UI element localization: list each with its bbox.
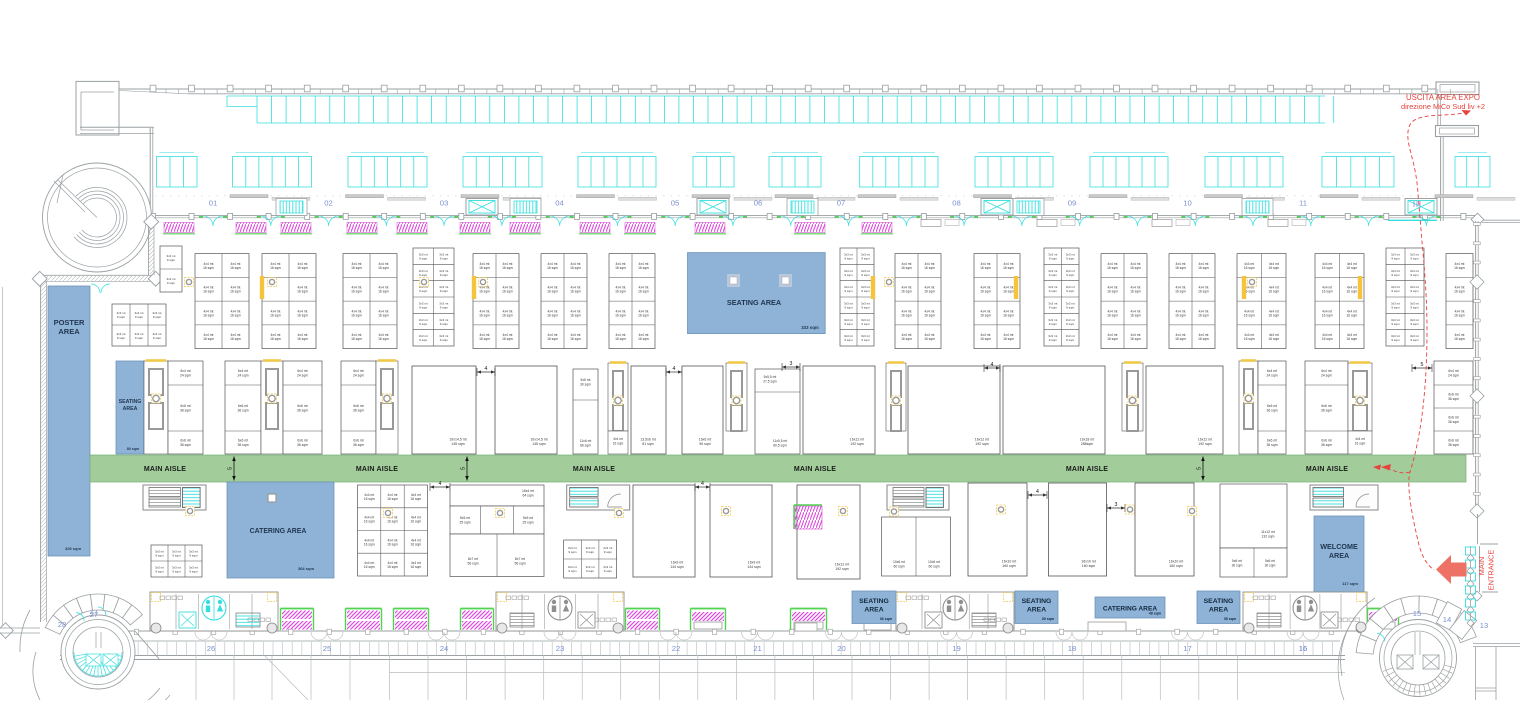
svg-text:25 sqm: 25 sqm — [459, 521, 470, 525]
svg-text:AREA: AREA — [123, 406, 138, 412]
svg-text:16 sqm: 16 sqm — [1268, 266, 1279, 270]
svg-text:9 sqm: 9 sqm — [153, 315, 162, 319]
svg-text:16 sqm: 16 sqm — [479, 313, 490, 317]
svg-text:AREA: AREA — [864, 607, 883, 614]
svg-text:24 sqm: 24 sqm — [1321, 373, 1332, 377]
svg-text:16 sqm: 16 sqm — [570, 337, 581, 341]
svg-text:9 sqm: 9 sqm — [153, 336, 162, 340]
svg-text:11: 11 — [1299, 199, 1307, 208]
svg-text:16 sqm: 16 sqm — [570, 313, 581, 317]
svg-text:192 sqm: 192 sqm — [835, 567, 849, 571]
svg-text:16 sqm: 16 sqm — [1130, 266, 1141, 270]
svg-text:16 sqm: 16 sqm — [901, 313, 912, 317]
svg-text:16x10 mt: 16x10 mt — [1081, 560, 1095, 564]
svg-text:13,5x6 mt: 13,5x6 mt — [640, 438, 655, 442]
svg-text:23: 23 — [556, 644, 565, 653]
svg-text:16 sqm: 16 sqm — [1130, 290, 1141, 294]
svg-text:3: 3 — [1115, 502, 1118, 508]
svg-text:16 sqm: 16 sqm — [364, 542, 375, 546]
svg-text:11x12 mt: 11x12 mt — [1261, 530, 1275, 534]
svg-text:22: 22 — [672, 644, 681, 653]
svg-text:5: 5 — [1421, 362, 1424, 368]
svg-text:9 sqm: 9 sqm — [1066, 273, 1075, 277]
svg-text:16 sqm: 16 sqm — [980, 266, 991, 270]
svg-text:16 sqm: 16 sqm — [270, 266, 281, 270]
svg-text:16 sqm: 16 sqm — [638, 337, 649, 341]
svg-text:16 sqm: 16 sqm — [1198, 313, 1209, 317]
svg-text:16 sqm: 16 sqm — [479, 266, 490, 270]
svg-text:9 sqm: 9 sqm — [1391, 338, 1400, 342]
svg-text:16 sqm: 16 sqm — [1130, 337, 1141, 341]
svg-text:9 sqm: 9 sqm — [861, 289, 870, 293]
svg-text:60,5 sqm: 60,5 sqm — [773, 444, 787, 448]
svg-text:16 sqm: 16 sqm — [297, 266, 308, 270]
svg-text:9 sqm: 9 sqm — [1066, 322, 1075, 326]
svg-text:16 sqm: 16 sqm — [1454, 266, 1465, 270]
svg-text:9 sqm: 9 sqm — [172, 553, 181, 557]
svg-text:16x9 mt: 16x9 mt — [671, 561, 683, 565]
svg-text:WELCOME: WELCOME — [1320, 542, 1358, 551]
svg-text:16x12 mt: 16x12 mt — [1198, 438, 1212, 442]
svg-text:21: 21 — [753, 644, 762, 653]
svg-text:16 sqm: 16 sqm — [1454, 290, 1465, 294]
svg-text:16 sqm: 16 sqm — [615, 266, 626, 270]
svg-text:16 sqm: 16 sqm — [1003, 313, 1014, 317]
svg-text:16 sqm: 16 sqm — [1268, 337, 1279, 341]
svg-text:36 sqm: 36 sqm — [1321, 408, 1332, 412]
svg-text:16 sqm: 16 sqm — [297, 313, 308, 317]
svg-text:16 sqm: 16 sqm — [547, 313, 558, 317]
svg-text:9 sqm: 9 sqm — [1391, 289, 1400, 293]
svg-text:16 sqm: 16 sqm — [203, 266, 214, 270]
svg-text:9 sqm: 9 sqm — [155, 569, 164, 573]
svg-text:16 sqm: 16 sqm — [901, 337, 912, 341]
svg-text:16 sqm: 16 sqm — [1107, 290, 1118, 294]
svg-text:9 sqm: 9 sqm — [1391, 257, 1400, 261]
svg-text:4x4 mt: 4x4 mt — [1355, 437, 1365, 441]
svg-text:16 sqm: 16 sqm — [638, 313, 649, 317]
svg-text:5x6 mt: 5x6 mt — [1265, 559, 1275, 563]
svg-text:16 sqm: 16 sqm — [1175, 290, 1186, 294]
svg-text:16 sqm: 16 sqm — [615, 290, 626, 294]
svg-text:192 sqm: 192 sqm — [975, 442, 989, 446]
svg-text:36 sqm: 36 sqm — [297, 443, 308, 447]
svg-text:16 sqm: 16 sqm — [1244, 266, 1255, 270]
svg-text:16 sqm: 16 sqm — [502, 290, 513, 294]
svg-text:16: 16 — [1299, 644, 1308, 653]
svg-text:16 sqm: 16 sqm — [1346, 266, 1357, 270]
svg-text:16 sqm: 16 sqm — [547, 337, 558, 341]
svg-text:9 sqm: 9 sqm — [1391, 273, 1400, 277]
svg-text:16x10 mt: 16x10 mt — [1169, 560, 1183, 564]
svg-text:9 sqm: 9 sqm — [861, 273, 870, 277]
svg-text:16 sqm: 16 sqm — [638, 266, 649, 270]
svg-text:MAIN AISLE: MAIN AISLE — [356, 466, 398, 473]
svg-text:9 sqm: 9 sqm — [844, 273, 853, 277]
svg-text:MAIN AISLE: MAIN AISLE — [1306, 466, 1348, 473]
svg-text:16 sqm: 16 sqm — [387, 520, 398, 524]
svg-text:24 sqm: 24 sqm — [180, 373, 191, 377]
svg-text:9 sqm: 9 sqm — [844, 306, 853, 310]
svg-text:4: 4 — [991, 362, 994, 368]
svg-text:03: 03 — [440, 199, 449, 208]
svg-text:SEATING AREA: SEATING AREA — [727, 298, 782, 307]
svg-text:9 sqm: 9 sqm — [419, 289, 428, 293]
svg-text:MAIN AISLE: MAIN AISLE — [573, 466, 615, 473]
svg-text:16 sqm: 16 sqm — [351, 313, 362, 317]
svg-text:9 sqm: 9 sqm — [568, 550, 577, 554]
svg-text:16 sqm: 16 sqm — [1454, 337, 1465, 341]
svg-text:14: 14 — [1443, 615, 1451, 624]
svg-text:24 sqm: 24 sqm — [353, 373, 364, 377]
svg-text:160 sqm: 160 sqm — [1169, 564, 1183, 568]
svg-text:36 sqm: 36 sqm — [353, 443, 364, 447]
svg-text:96 sqm: 96 sqm — [699, 442, 711, 446]
svg-text:16 sqm: 16 sqm — [570, 266, 581, 270]
svg-text:10x6 mt: 10x6 mt — [928, 560, 940, 564]
svg-text:16 sqm: 16 sqm — [901, 290, 912, 294]
svg-text:16 sqm: 16 sqm — [1346, 290, 1357, 294]
svg-text:SEATING: SEATING — [859, 598, 889, 605]
svg-text:16 sqm: 16 sqm — [1130, 313, 1141, 317]
svg-text:07: 07 — [837, 199, 846, 208]
svg-text:16 sqm: 16 sqm — [270, 313, 281, 317]
svg-text:9 sqm: 9 sqm — [1066, 257, 1075, 261]
svg-text:9 sqm: 9 sqm — [586, 550, 595, 554]
svg-text:MAIN: MAIN — [1477, 557, 1486, 575]
svg-text:16 sqm: 16 sqm — [203, 313, 214, 317]
svg-text:9 sqm: 9 sqm — [440, 322, 449, 326]
svg-text:16 sqm: 16 sqm — [1322, 337, 1333, 341]
svg-text:04: 04 — [555, 199, 564, 208]
svg-text:16 sqm: 16 sqm — [230, 313, 241, 317]
svg-text:9 sqm: 9 sqm — [1049, 322, 1058, 326]
svg-text:9 sqm: 9 sqm — [586, 569, 595, 573]
svg-text:9 sqm: 9 sqm — [1049, 306, 1058, 310]
svg-text:9 sqm: 9 sqm — [419, 322, 428, 326]
svg-text:27: 27 — [90, 610, 99, 619]
svg-text:MAIN AISLE: MAIN AISLE — [144, 466, 186, 473]
svg-text:SEATING: SEATING — [119, 399, 142, 405]
svg-text:16 sqm: 16 sqm — [1454, 313, 1465, 317]
svg-text:5: 5 — [461, 467, 467, 470]
svg-text:15: 15 — [1413, 609, 1421, 618]
svg-text:4: 4 — [673, 366, 676, 372]
svg-text:4: 4 — [439, 481, 442, 487]
svg-text:11x5,5 mt: 11x5,5 mt — [773, 439, 787, 443]
svg-text:9 sqm: 9 sqm — [189, 569, 198, 573]
svg-text:60 sqm: 60 sqm — [893, 565, 904, 569]
svg-text:66 sqm: 66 sqm — [580, 444, 591, 448]
svg-text:AREA: AREA — [1329, 551, 1349, 560]
svg-text:06: 06 — [754, 199, 763, 208]
svg-text:5: 5 — [1197, 467, 1203, 470]
svg-text:144 sqm: 144 sqm — [670, 565, 684, 569]
svg-text:05: 05 — [671, 199, 680, 208]
svg-text:9 sqm: 9 sqm — [844, 338, 853, 342]
svg-text:132 sqm: 132 sqm — [1261, 535, 1274, 539]
svg-text:9 sqm: 9 sqm — [861, 306, 870, 310]
svg-text:SEATING: SEATING — [1022, 598, 1052, 605]
svg-text:329 sqm: 329 sqm — [65, 546, 81, 551]
svg-text:9 sqm: 9 sqm — [1049, 257, 1058, 261]
svg-text:9 sqm: 9 sqm — [1391, 322, 1400, 326]
svg-text:16 sqm: 16 sqm — [364, 497, 375, 501]
svg-text:9 sqm: 9 sqm — [135, 315, 144, 319]
svg-text:9 sqm: 9 sqm — [440, 306, 449, 310]
svg-text:26: 26 — [207, 644, 216, 653]
svg-text:AREA: AREA — [1209, 607, 1228, 614]
svg-text:9 sqm: 9 sqm — [861, 322, 870, 326]
svg-text:4: 4 — [1036, 489, 1039, 495]
svg-text:02: 02 — [324, 199, 333, 208]
svg-text:9 sqm: 9 sqm — [1066, 338, 1075, 342]
svg-text:144 sqm: 144 sqm — [747, 565, 761, 569]
svg-text:80 sqm: 80 sqm — [127, 447, 139, 451]
svg-text:9 sqm: 9 sqm — [1049, 338, 1058, 342]
svg-text:16 sqm: 16 sqm — [203, 337, 214, 341]
svg-text:145 sqm: 145 sqm — [451, 442, 465, 446]
svg-text:9 sqm: 9 sqm — [604, 550, 613, 554]
svg-text:16 sqm: 16 sqm — [1003, 337, 1014, 341]
svg-text:16x12 mt: 16x12 mt — [850, 438, 864, 442]
svg-text:16 sqm: 16 sqm — [615, 337, 626, 341]
svg-text:5x5,5 mt: 5x5,5 mt — [764, 375, 777, 379]
svg-text:30 sqm: 30 sqm — [1232, 564, 1243, 568]
svg-text:160 sqm: 160 sqm — [1002, 564, 1016, 568]
svg-text:16 sqm: 16 sqm — [1198, 337, 1209, 341]
svg-text:16 sqm: 16 sqm — [1244, 337, 1255, 341]
svg-text:10x6 mt: 10x6 mt — [893, 560, 905, 564]
svg-text:CATERING AREA: CATERING AREA — [250, 528, 307, 535]
svg-text:9 sqm: 9 sqm — [419, 273, 428, 277]
svg-text:8x7 mt: 8x7 mt — [515, 557, 525, 561]
svg-text:13: 13 — [1480, 621, 1488, 630]
svg-text:16 sqm: 16 sqm — [364, 520, 375, 524]
svg-text:9 sqm: 9 sqm — [861, 338, 870, 342]
svg-text:9 sqm: 9 sqm — [172, 569, 181, 573]
svg-text:direzione MiCo Sud liv +2: direzione MiCo Sud liv +2 — [1401, 102, 1485, 111]
svg-text:9 sqm: 9 sqm — [1066, 289, 1075, 293]
svg-text:9 sqm: 9 sqm — [167, 258, 176, 262]
svg-text:56 sqm: 56 sqm — [467, 562, 478, 566]
svg-text:16 sqm: 16 sqm — [1346, 337, 1357, 341]
svg-text:9 sqm: 9 sqm — [440, 273, 449, 277]
svg-text:16 sqm: 16 sqm — [410, 497, 421, 501]
svg-text:5x6 mt: 5x6 mt — [581, 378, 591, 382]
svg-text:36 sqm: 36 sqm — [1448, 397, 1459, 401]
svg-text:24 sqm: 24 sqm — [1266, 373, 1277, 377]
svg-text:10: 10 — [1183, 199, 1192, 208]
svg-text:4x4 mt: 4x4 mt — [613, 437, 623, 441]
svg-text:364 sqm: 364 sqm — [298, 566, 314, 571]
svg-text:9 sqm: 9 sqm — [1410, 338, 1419, 342]
svg-text:16 sqm: 16 sqm — [502, 266, 513, 270]
svg-text:16 sqm: 16 sqm — [924, 266, 935, 270]
svg-text:36 sqm: 36 sqm — [237, 443, 248, 447]
svg-text:16 sqm: 16 sqm — [270, 337, 281, 341]
svg-text:16 sqm: 16 sqm — [1322, 313, 1333, 317]
svg-text:27,5 sqm: 27,5 sqm — [763, 380, 777, 384]
svg-text:MAIN AISLE: MAIN AISLE — [794, 466, 836, 473]
svg-text:8x7 mt: 8x7 mt — [468, 557, 478, 561]
svg-text:16 sqm: 16 sqm — [479, 290, 490, 294]
svg-text:16 sqm: 16 sqm — [980, 313, 991, 317]
svg-text:16 sqm: 16 sqm — [1175, 337, 1186, 341]
svg-text:9 sqm: 9 sqm — [861, 257, 870, 261]
svg-text:35 sqm: 35 sqm — [1224, 617, 1236, 621]
svg-text:16 sqm: 16 sqm — [547, 266, 558, 270]
svg-text:30 sqm: 30 sqm — [1042, 617, 1054, 621]
svg-text:16 sqm: 16 sqm — [297, 337, 308, 341]
svg-text:36 sqm: 36 sqm — [1266, 408, 1277, 412]
svg-text:9 sqm: 9 sqm — [117, 336, 126, 340]
svg-text:36 sqm: 36 sqm — [180, 408, 191, 412]
svg-text:16 sqm: 16 sqm — [1268, 290, 1279, 294]
svg-text:9 sqm: 9 sqm — [155, 553, 164, 557]
svg-text:16 sqm: 16 sqm — [980, 337, 991, 341]
svg-text:36 sqm: 36 sqm — [1448, 443, 1459, 447]
svg-text:117 sqm: 117 sqm — [1342, 581, 1358, 586]
svg-text:17: 17 — [1183, 644, 1192, 653]
svg-text:16 sqm: 16 sqm — [924, 337, 935, 341]
svg-text:16 sqm: 16 sqm — [364, 565, 375, 569]
svg-text:16 sqm: 16 sqm — [1322, 266, 1333, 270]
svg-text:16 sqm: 16 sqm — [502, 313, 513, 317]
svg-text:10x14,5 mt: 10x14,5 mt — [530, 438, 547, 442]
svg-text:64 sqm: 64 sqm — [522, 494, 533, 498]
svg-text:16 sqm: 16 sqm — [1107, 337, 1118, 341]
svg-text:48 sqm: 48 sqm — [1149, 612, 1161, 616]
svg-text:60 sqm: 60 sqm — [928, 565, 939, 569]
svg-text:145 sqm: 145 sqm — [532, 442, 546, 446]
svg-text:9 sqm: 9 sqm — [117, 315, 126, 319]
svg-text:9 sqm: 9 sqm — [568, 569, 577, 573]
svg-text:36 sqm: 36 sqm — [1266, 443, 1277, 447]
svg-text:30 sqm: 30 sqm — [580, 383, 591, 387]
svg-text:16 sqm: 16 sqm — [387, 542, 398, 546]
svg-text:36 sqm: 36 sqm — [880, 617, 892, 621]
svg-text:16 sqm: 16 sqm — [547, 290, 558, 294]
svg-text:192 sqm: 192 sqm — [850, 442, 864, 446]
svg-text:16 sqm: 16 sqm — [387, 497, 398, 501]
svg-text:16 sqm: 16 sqm — [924, 313, 935, 317]
svg-text:MAIN AISLE: MAIN AISLE — [1066, 466, 1108, 473]
svg-text:01: 01 — [209, 199, 218, 208]
svg-text:16 sqm: 16 sqm — [410, 520, 421, 524]
svg-text:16x9 mt: 16x9 mt — [748, 561, 760, 565]
svg-text:16 sqm: 16 sqm — [1198, 290, 1209, 294]
svg-text:333 sqm: 333 sqm — [801, 325, 819, 330]
svg-text:25: 25 — [323, 644, 332, 653]
svg-text:08: 08 — [952, 199, 961, 208]
svg-text:9 sqm: 9 sqm — [1049, 273, 1058, 277]
svg-text:16 sqm: 16 sqm — [1268, 313, 1279, 317]
svg-text:9 sqm: 9 sqm — [1391, 306, 1400, 310]
svg-text:16 sqm: 16 sqm — [615, 313, 626, 317]
svg-text:160 sqm: 160 sqm — [1082, 564, 1096, 568]
svg-text:16 sqm: 16 sqm — [924, 290, 935, 294]
svg-text:16 sqm: 16 sqm — [1107, 266, 1118, 270]
svg-text:192 sqm: 192 sqm — [1198, 442, 1212, 446]
svg-text:9 sqm: 9 sqm — [1410, 257, 1419, 261]
svg-text:24 sqm: 24 sqm — [237, 373, 248, 377]
svg-text:16 sqm: 16 sqm — [351, 266, 362, 270]
svg-text:16 sqm: 16 sqm — [613, 442, 624, 446]
svg-text:16 sqm: 16 sqm — [230, 266, 241, 270]
svg-text:81 sqm: 81 sqm — [642, 442, 654, 446]
svg-text:09: 09 — [1068, 199, 1077, 208]
svg-text:9 sqm: 9 sqm — [440, 257, 449, 261]
svg-text:56 sqm: 56 sqm — [514, 562, 525, 566]
svg-text:24 sqm: 24 sqm — [1448, 373, 1459, 377]
svg-text:3: 3 — [790, 361, 793, 367]
svg-text:16x10 mt: 16x10 mt — [1002, 560, 1016, 564]
svg-text:16x18 mt: 16x18 mt — [1080, 438, 1094, 442]
svg-text:16 sqm: 16 sqm — [351, 290, 362, 294]
svg-text:16 sqm: 16 sqm — [502, 337, 513, 341]
svg-text:16 sqm: 16 sqm — [570, 290, 581, 294]
svg-text:9 sqm: 9 sqm — [419, 338, 428, 342]
svg-text:AREA: AREA — [1027, 607, 1046, 614]
svg-text:9 sqm: 9 sqm — [604, 569, 613, 573]
svg-text:16x12 mt: 16x12 mt — [975, 438, 989, 442]
svg-text:16x4 mt: 16x4 mt — [522, 489, 534, 493]
svg-text:24: 24 — [440, 644, 449, 653]
svg-text:16 sqm: 16 sqm — [230, 337, 241, 341]
svg-text:25 sqm: 25 sqm — [522, 521, 533, 525]
svg-text:16 sqm: 16 sqm — [378, 290, 389, 294]
svg-text:16 sqm: 16 sqm — [1175, 266, 1186, 270]
svg-text:11x6 mt: 11x6 mt — [580, 439, 592, 443]
svg-text:5x6 mt: 5x6 mt — [1232, 559, 1242, 563]
svg-text:16 sqm: 16 sqm — [901, 266, 912, 270]
svg-text:36 sqm: 36 sqm — [297, 408, 308, 412]
svg-text:16x12 mt: 16x12 mt — [835, 563, 849, 567]
svg-text:28: 28 — [58, 620, 67, 629]
svg-text:SEATING: SEATING — [1204, 598, 1234, 605]
svg-text:16 sqm: 16 sqm — [410, 565, 421, 569]
svg-text:36 sqm: 36 sqm — [353, 408, 364, 412]
svg-text:16 sqm: 16 sqm — [297, 290, 308, 294]
svg-text:10x14,5 mt: 10x14,5 mt — [449, 438, 466, 442]
svg-text:4: 4 — [701, 481, 704, 487]
svg-text:16 sqm: 16 sqm — [1003, 266, 1014, 270]
svg-text:16 sqm: 16 sqm — [230, 290, 241, 294]
svg-text:9 sqm: 9 sqm — [844, 289, 853, 293]
svg-text:16 sqm: 16 sqm — [1175, 313, 1186, 317]
svg-text:16 sqm: 16 sqm — [203, 290, 214, 294]
svg-text:9 sqm: 9 sqm — [1410, 273, 1419, 277]
svg-text:4: 4 — [485, 366, 488, 372]
svg-text:9 sqm: 9 sqm — [440, 289, 449, 293]
svg-text:16 sqm: 16 sqm — [1355, 442, 1366, 446]
svg-text:16 sqm: 16 sqm — [387, 565, 398, 569]
svg-text:30 sqm: 30 sqm — [1265, 564, 1276, 568]
svg-text:9 sqm: 9 sqm — [844, 322, 853, 326]
svg-text:5x5 mt: 5x5 mt — [523, 516, 533, 520]
svg-text:18: 18 — [1068, 644, 1077, 653]
svg-text:9 sqm: 9 sqm — [1410, 289, 1419, 293]
svg-text:16x6 mt: 16x6 mt — [699, 438, 711, 442]
svg-text:16 sqm: 16 sqm — [1244, 313, 1255, 317]
svg-text:9 sqm: 9 sqm — [1049, 289, 1058, 293]
svg-text:24 sqm: 24 sqm — [297, 373, 308, 377]
svg-text:9 sqm: 9 sqm — [1410, 322, 1419, 326]
svg-text:16 sqm: 16 sqm — [1322, 290, 1333, 294]
svg-text:16 sqm: 16 sqm — [378, 313, 389, 317]
svg-text:16 sqm: 16 sqm — [378, 337, 389, 341]
